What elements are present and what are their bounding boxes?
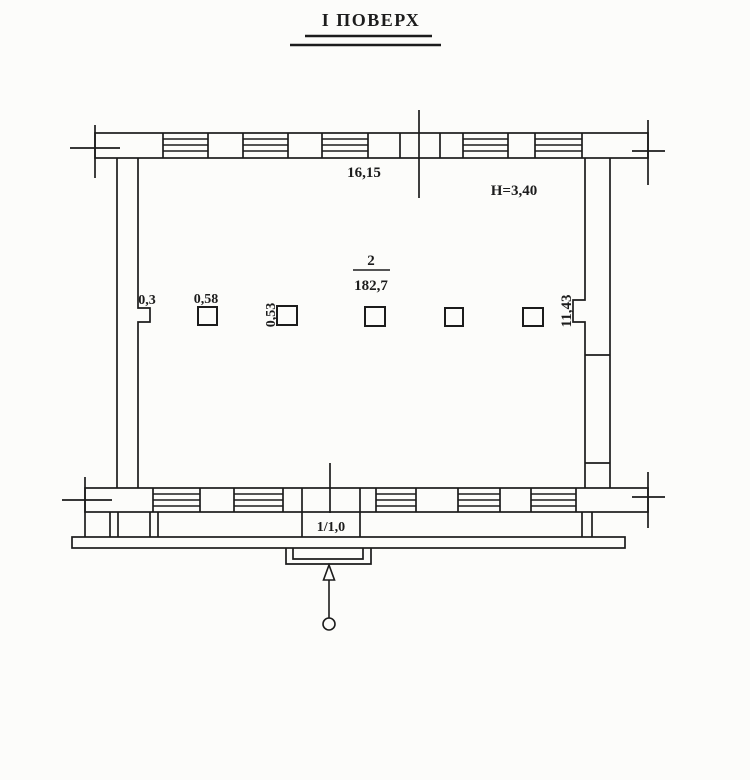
dimension-column-depth: 0,53 xyxy=(264,303,279,328)
title-underline xyxy=(290,36,441,45)
page-title: І ПОВЕРХ xyxy=(322,10,421,30)
room-area: 182,7 xyxy=(354,278,388,294)
entrance-arrow-icon xyxy=(323,565,335,630)
grid-marker-bottom-left xyxy=(62,477,112,537)
dimension-side-length: 11,43 xyxy=(559,295,575,328)
column xyxy=(365,307,385,326)
floor-plan-page: І ПОВЕРХ xyxy=(0,0,750,780)
entry-band xyxy=(110,512,592,537)
grid-marker-bottom-right xyxy=(632,472,665,528)
ceiling-height-note: Н=3,40 xyxy=(491,183,537,199)
columns xyxy=(198,306,543,326)
bottom-wall xyxy=(85,488,648,537)
top-windows xyxy=(163,139,582,151)
right-wall xyxy=(573,158,610,488)
grid-marker-top-right xyxy=(632,120,665,185)
room-number: 2 xyxy=(367,253,375,269)
dimension-top-width: 16,15 xyxy=(347,165,381,181)
floor-plan-drawing: І ПОВЕРХ xyxy=(0,0,750,780)
column xyxy=(445,308,463,326)
left-wall xyxy=(117,158,150,488)
bottom-windows xyxy=(153,494,576,506)
dimension-wall-offset: 0,3 xyxy=(138,293,156,308)
entrance-mark: 1/1,0 xyxy=(317,520,345,535)
entrance-porch xyxy=(286,548,371,564)
dimension-column-width: 0,58 xyxy=(194,292,219,307)
column xyxy=(277,306,297,325)
column xyxy=(198,307,217,325)
sidewalk-strip xyxy=(72,537,625,548)
column xyxy=(523,308,543,326)
